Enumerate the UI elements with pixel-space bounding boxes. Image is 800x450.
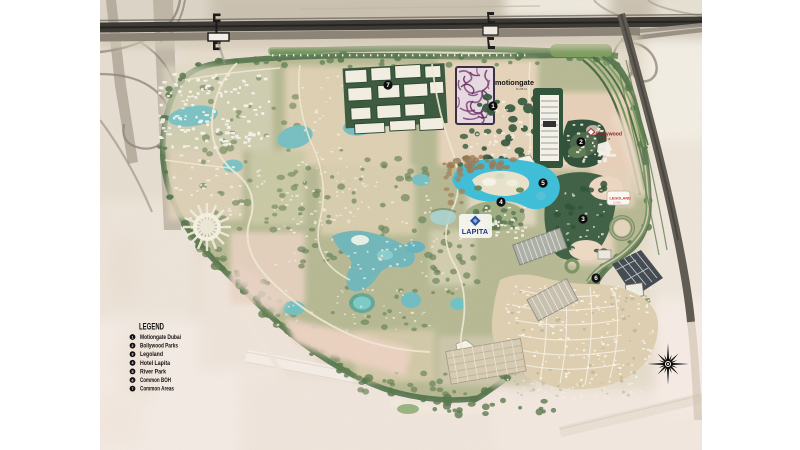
svg-text:Motiongate Dubai: Motiongate Dubai: [140, 334, 181, 341]
svg-text:7: 7: [386, 82, 390, 89]
svg-text:Common BOH: Common BOH: [140, 377, 171, 384]
svg-text:Legoland: Legoland: [140, 351, 163, 358]
svg-text:4: 4: [499, 199, 503, 206]
svg-text:Bollywood Parks: Bollywood Parks: [140, 343, 178, 350]
svg-text:1: 1: [491, 103, 495, 110]
svg-text:6: 6: [132, 378, 134, 382]
svg-text:3: 3: [581, 216, 585, 223]
svg-text:3: 3: [132, 353, 134, 357]
svg-text:River Park: River Park: [140, 368, 166, 375]
svg-text:Hotel Lapita: Hotel Lapita: [140, 360, 170, 367]
svg-text:2: 2: [579, 139, 583, 146]
svg-text:6: 6: [594, 275, 598, 282]
svg-text:Common Areas: Common Areas: [140, 386, 174, 393]
svg-text:7: 7: [132, 387, 134, 391]
svg-text:1: 1: [132, 335, 134, 339]
svg-text:2: 2: [132, 344, 134, 348]
svg-text:LEGEND: LEGEND: [139, 322, 164, 332]
svg-text:5: 5: [132, 370, 134, 374]
svg-text:4: 4: [132, 361, 134, 365]
svg-text:5: 5: [541, 180, 545, 187]
